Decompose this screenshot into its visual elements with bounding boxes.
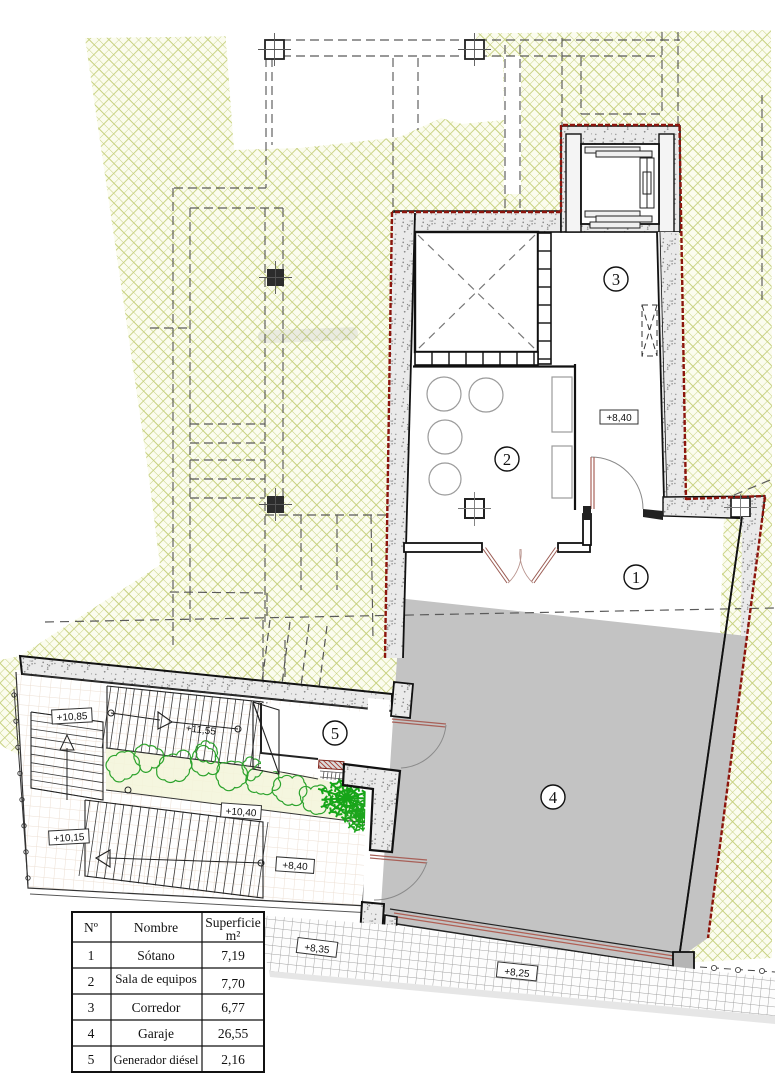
- svg-text:4: 4: [88, 1026, 95, 1041]
- svg-text:5: 5: [88, 1052, 95, 1067]
- svg-text:7,70: 7,70: [221, 976, 245, 991]
- svg-text:Corredor: Corredor: [132, 1000, 181, 1015]
- svg-text:4: 4: [549, 788, 557, 807]
- svg-text:Nº: Nº: [84, 920, 98, 935]
- svg-text:+10,40: +10,40: [225, 806, 257, 819]
- svg-text:+10,15: +10,15: [53, 832, 85, 845]
- svg-text:5: 5: [331, 724, 339, 743]
- svg-text:m²: m²: [226, 928, 241, 943]
- svg-text:Generador diésel: Generador diésel: [113, 1053, 199, 1067]
- svg-text:+8,40: +8,40: [282, 860, 308, 873]
- svg-text:1: 1: [632, 568, 640, 587]
- svg-text:1: 1: [88, 948, 95, 963]
- svg-text:+8,40: +8,40: [606, 413, 632, 424]
- svg-text:3: 3: [88, 1000, 95, 1015]
- svg-text:6,77: 6,77: [221, 1000, 245, 1015]
- svg-text:Sótano: Sótano: [137, 948, 175, 963]
- svg-text:26,55: 26,55: [218, 1026, 249, 1041]
- svg-text:7,19: 7,19: [221, 948, 245, 963]
- svg-text:Nombre: Nombre: [134, 920, 178, 935]
- svg-text:+10,85: +10,85: [56, 711, 88, 724]
- svg-text:2: 2: [88, 974, 95, 989]
- svg-text:Sala de equipos: Sala de equipos: [115, 971, 197, 986]
- svg-text:2,16: 2,16: [221, 1052, 245, 1067]
- svg-text:3: 3: [612, 270, 620, 289]
- svg-text:Garaje: Garaje: [138, 1026, 174, 1041]
- svg-text:2: 2: [503, 450, 511, 469]
